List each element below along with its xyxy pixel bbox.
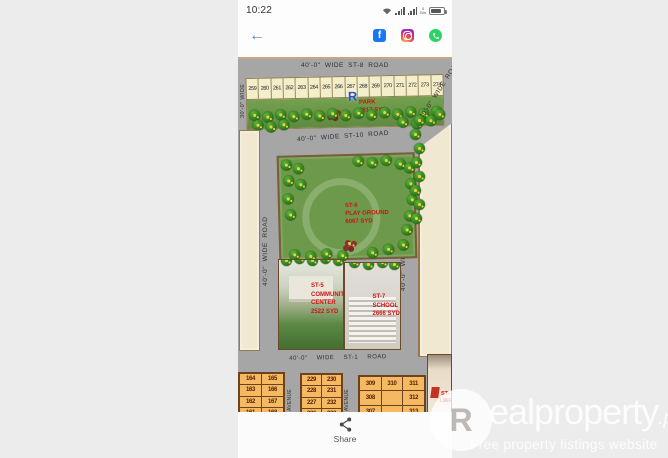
plot-cell: 260 (259, 79, 272, 99)
playground-area: ST-6 PLAY GROUND 6067 SYD (277, 152, 418, 262)
tree-icon (398, 239, 409, 250)
plot-cell: 165 (262, 374, 283, 384)
screenshot-canvas: 10:22 0B/s ← f 40'-0" WIDE ST-8 ROAD (0, 0, 668, 458)
plot-cell: 264 (308, 78, 321, 98)
plot-cell (382, 391, 403, 404)
school-label: ST-7 SCHOOL 2666 SYD (345, 293, 400, 310)
tree-icon (321, 248, 332, 259)
tree-icon (363, 262, 374, 270)
phone-screen: 10:22 0B/s ← f 40'-0" WIDE ST-8 ROAD (238, 0, 452, 458)
tree-icon (281, 159, 292, 170)
tree-icon (367, 157, 378, 168)
plot-block-left: 164165163166162167161168 (238, 372, 285, 412)
tree-icon (414, 115, 425, 126)
community-center-photo: ST-5 COMMUNITY CENTER 2522 SYD (278, 259, 344, 350)
road-label-st10: 40'-0" WIDE ST-10 ROAD (268, 128, 418, 145)
playground-label: ST-6 PLAY GROUND 6067 SYD (296, 201, 394, 220)
tree-icon (265, 121, 276, 132)
plot-cell: 270 (382, 76, 395, 96)
tree-icon (381, 155, 392, 166)
plot-cell: 310 (382, 377, 403, 390)
plot-cell: 228 (302, 386, 321, 396)
plot-cell: 262 (283, 78, 296, 98)
tree-icon (333, 259, 344, 266)
plot-cell: 265 (320, 77, 333, 97)
tree-icon (307, 259, 318, 266)
plot-cell: 164 (240, 374, 261, 384)
plot-cell: 261 (271, 78, 284, 98)
plot-cell: 309 (360, 377, 381, 390)
facebook-icon[interactable]: f (373, 29, 386, 42)
tree-icon (349, 262, 360, 268)
plot-cell: 167 (262, 397, 283, 407)
tree-icon (283, 193, 294, 204)
status-icons: 0B/s (382, 5, 445, 15)
plot-cell: 229 (302, 375, 321, 385)
wifi-icon (382, 6, 392, 15)
app-toolbar: ← f (238, 20, 452, 56)
clock-time: 10:22 (246, 5, 272, 16)
tree-icon (410, 129, 421, 140)
signal-icon-2 (408, 7, 417, 15)
plot-cell: 311 (403, 377, 424, 390)
plot-cell: 272 (407, 75, 420, 95)
back-button[interactable]: ← (249, 28, 265, 44)
location-marker-r: R (348, 89, 358, 104)
share-button[interactable]: Share (238, 417, 452, 444)
tree-icon (383, 244, 394, 255)
plot-cell: 162 (240, 397, 261, 407)
plot-cell: 166 (262, 385, 283, 395)
data-rate: 0B/s (420, 7, 426, 15)
tree-icon (377, 262, 388, 268)
watermark-tld: .pk (658, 408, 668, 429)
tree-icon (283, 175, 294, 186)
plot-cell: 271 (394, 76, 407, 96)
plot-cell: 269 (370, 76, 383, 96)
plot-cell: 312 (403, 391, 424, 404)
school-photo: ST-7 SCHOOL 2666 SYD (344, 262, 401, 350)
status-bar: 10:22 0B/s (246, 3, 445, 17)
share-label: Share (334, 434, 357, 444)
battery-icon (429, 7, 445, 15)
plot-cell: 273 (419, 75, 432, 95)
tree-icon (295, 179, 306, 190)
plot-cell: 263 (296, 78, 309, 98)
tree-icon (293, 163, 304, 174)
plot-cell: 231 (322, 386, 341, 396)
tree-icon (401, 224, 412, 235)
tree-icon (285, 209, 296, 220)
community-center-label: ST-5 COMMUNITY CENTER 2522 SYD (279, 282, 343, 308)
signal-icon (395, 7, 404, 15)
tree-icon (410, 185, 421, 196)
tree-icon (397, 117, 408, 128)
tree-icon (414, 199, 425, 210)
tree-icon (353, 156, 364, 167)
bottom-bar: Share (238, 412, 452, 458)
tree-icon (281, 259, 292, 266)
tree-icon (294, 259, 305, 264)
share-shortcuts: f (373, 29, 442, 42)
tree-icon (411, 157, 422, 168)
plot-cell: 163 (240, 385, 261, 395)
road-label-st8: 40'-0" WIDE ST-8 ROAD (238, 62, 452, 69)
watermark-brand: ealproperty.pk (489, 391, 668, 433)
plot-cell: 227 (302, 398, 321, 408)
plot-cell: 308 (360, 391, 381, 404)
watermark-tagline: Free property listings website (470, 437, 658, 452)
share-icon (339, 417, 352, 432)
plot-area-right (418, 123, 452, 357)
masterplan-image[interactable]: 40'-0" WIDE ST-8 ROAD 30'-0" WIDE 259260… (238, 57, 452, 412)
plot-cell: 266 (333, 77, 346, 97)
avenue-label-right: AVENUE (344, 377, 350, 411)
tree-icon (414, 143, 425, 154)
plot-block-middle: 229230228231227232226233 (300, 373, 343, 412)
road-label-left: 40'-0" WIDE ROAD (262, 162, 269, 286)
plot-cell: 230 (322, 375, 341, 385)
tree-icon (434, 109, 445, 120)
avenue-label-left: AVENUE (287, 377, 293, 411)
tree-icon (320, 259, 331, 264)
plot-cell: 259 (246, 79, 259, 99)
plot-block-right: 309310311308312307313 (358, 375, 426, 412)
phone-glyph (432, 32, 440, 40)
tree-icon (367, 247, 378, 258)
road-label-st1: 40'-0" WIDE ST-1 ROAD (256, 354, 420, 363)
plot-cell: 268 (357, 76, 370, 96)
whatsapp-icon[interactable] (429, 29, 442, 42)
tree-icon (411, 213, 422, 224)
instagram-icon[interactable] (401, 29, 414, 42)
tree-icon (278, 119, 289, 130)
tree-icon (414, 171, 425, 182)
tree-icon (389, 262, 400, 270)
plot-area-left (239, 130, 260, 351)
plot-cell: 232 (322, 398, 341, 408)
